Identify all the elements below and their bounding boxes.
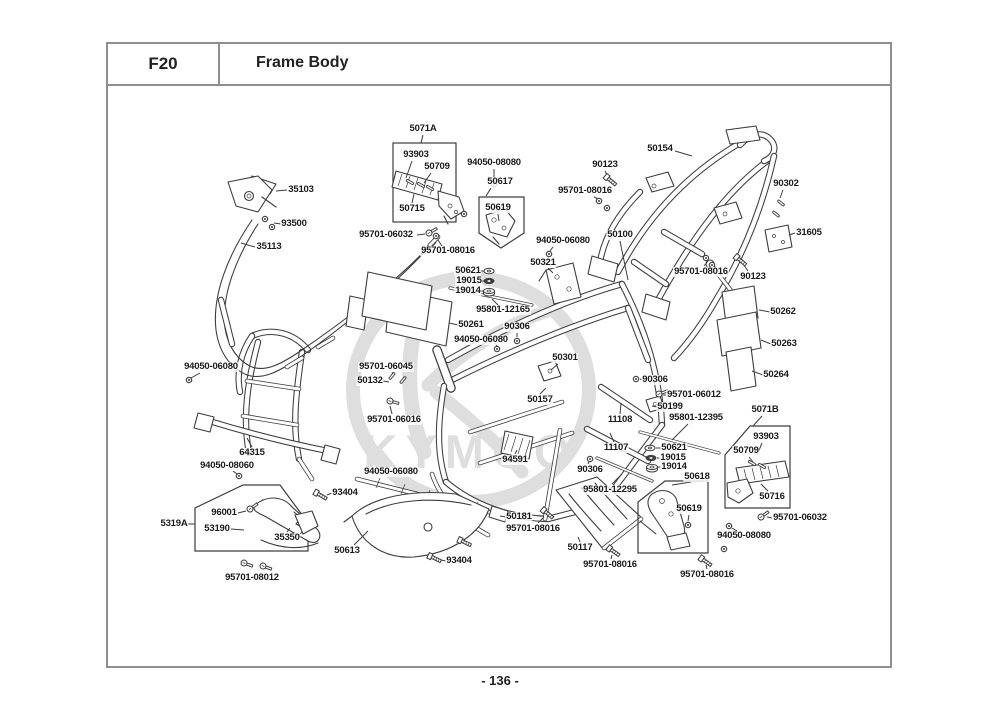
nut-icon	[709, 262, 714, 267]
leader-line-93500	[274, 223, 281, 224]
bolt-icon	[603, 174, 618, 188]
leader-line-95801-12165	[492, 299, 498, 305]
leader-line-95701-08016	[438, 240, 442, 246]
bolt-icon	[427, 553, 442, 564]
leader-line-93903	[406, 161, 412, 178]
leader-line-50100	[620, 241, 628, 280]
leader-line-35350	[287, 528, 290, 532]
leader-line-50619	[498, 214, 499, 221]
screw-icon	[655, 388, 668, 398]
pin-icon	[400, 376, 407, 384]
screw-icon	[386, 397, 399, 406]
nut-icon	[186, 377, 191, 382]
catalog-page: F20 Frame Body KYMCO	[0, 0, 1000, 707]
nut-icon	[433, 233, 438, 238]
leader-line-50117	[578, 537, 580, 542]
nut-icon	[514, 338, 519, 343]
leader-line-94591	[515, 450, 517, 454]
nut-icon	[262, 216, 267, 221]
leader-line-64315	[247, 438, 252, 447]
leader-line-50154	[675, 151, 692, 156]
leader-line-50301	[551, 364, 558, 370]
leader-line-96001	[238, 511, 246, 513]
pin-icon	[758, 463, 766, 469]
fastener-markers	[186, 174, 784, 572]
leader-line-95701-08016	[706, 565, 707, 569]
bolt-icon	[733, 254, 748, 268]
leader-line-93404	[327, 493, 332, 495]
leader-line-50263	[761, 340, 771, 344]
nut-icon	[546, 251, 551, 256]
nut-icon	[633, 376, 638, 381]
bolt-icon	[606, 545, 621, 558]
leader-line-95701-06016	[390, 406, 392, 414]
leader-line-95701-06032	[417, 234, 425, 235]
leader-lines	[188, 135, 795, 569]
leader-line-50181	[500, 516, 506, 517]
pin-icon	[772, 211, 780, 218]
nut-icon	[685, 522, 690, 527]
leader-line-95701-08016	[611, 555, 612, 559]
diagram-overlay	[0, 0, 1000, 707]
leader-line-50261	[449, 323, 458, 325]
leader-line-5071B	[753, 416, 762, 426]
leader-line-90306	[640, 379, 644, 380]
grommet-icon	[484, 288, 495, 296]
leader-line-31605	[789, 233, 795, 235]
leader-line-50715	[412, 194, 414, 203]
nut-icon	[587, 456, 592, 461]
leader-line-50617	[486, 188, 491, 196]
nut-icon	[703, 255, 708, 260]
pin-icon	[417, 182, 425, 188]
screw-icon	[240, 559, 253, 569]
leader-line-50619	[688, 515, 689, 521]
leader-line-50613	[354, 531, 368, 545]
bolt-icon	[698, 555, 713, 568]
leader-line-94050-06080	[191, 373, 200, 378]
bolt-icon	[457, 537, 472, 548]
leader-line-50264	[752, 371, 763, 375]
washer-icon	[645, 445, 655, 451]
damper-icon	[484, 278, 495, 284]
leader-line-95701-08016	[704, 261, 708, 266]
leader-line-5071A	[421, 135, 423, 143]
bolt-icon	[313, 489, 328, 501]
nut-icon	[726, 523, 731, 528]
leader-line-90306	[588, 462, 589, 464]
nut-icon	[494, 346, 499, 351]
leader-line-11108	[620, 403, 621, 414]
nut-icon	[604, 205, 609, 210]
leader-line-50157	[540, 388, 546, 394]
leader-line-95701-08016	[538, 517, 544, 523]
leader-line-50618	[672, 482, 691, 485]
leader-line-93903	[757, 443, 762, 455]
leader-line-95801-12395	[672, 424, 688, 440]
nut-icon	[721, 546, 726, 551]
leader-line-50709	[424, 173, 431, 183]
leader-line-35113	[241, 243, 255, 247]
leader-line-94050-08080	[732, 528, 737, 531]
leader-line-50716	[761, 484, 768, 491]
leader-line-94050-06080	[550, 247, 553, 251]
pin-icon	[406, 179, 414, 185]
screw-icon	[757, 509, 770, 521]
pin-icon	[389, 372, 396, 380]
nut-icon	[491, 181, 496, 186]
nut-icon	[461, 211, 466, 216]
leader-line-90302	[780, 190, 783, 198]
leader-line-50132	[383, 381, 389, 382]
leader-line-95701-06032	[767, 517, 772, 518]
leader-line-11107	[610, 433, 614, 442]
leader-line-95801-12295	[612, 474, 622, 484]
washer-icon	[484, 268, 494, 274]
screw-icon	[259, 562, 272, 572]
nut-icon	[269, 224, 274, 229]
leader-line-94050-08060	[233, 471, 237, 474]
pin-icon	[777, 200, 785, 207]
leader-line-53190	[231, 529, 244, 530]
leader-line-50262	[759, 310, 770, 312]
pin-icon	[426, 185, 434, 191]
leader-line-50199	[652, 406, 657, 407]
leader-line-35103	[276, 190, 287, 191]
nut-icon	[236, 473, 241, 478]
grommet-icon	[647, 464, 658, 472]
page-number: - 136 -	[107, 673, 893, 688]
leader-line-50321	[548, 268, 553, 273]
damper-icon	[646, 455, 657, 461]
leader-line-94050-06080	[495, 343, 497, 346]
screw-icon	[246, 501, 259, 513]
nut-icon	[596, 198, 601, 203]
